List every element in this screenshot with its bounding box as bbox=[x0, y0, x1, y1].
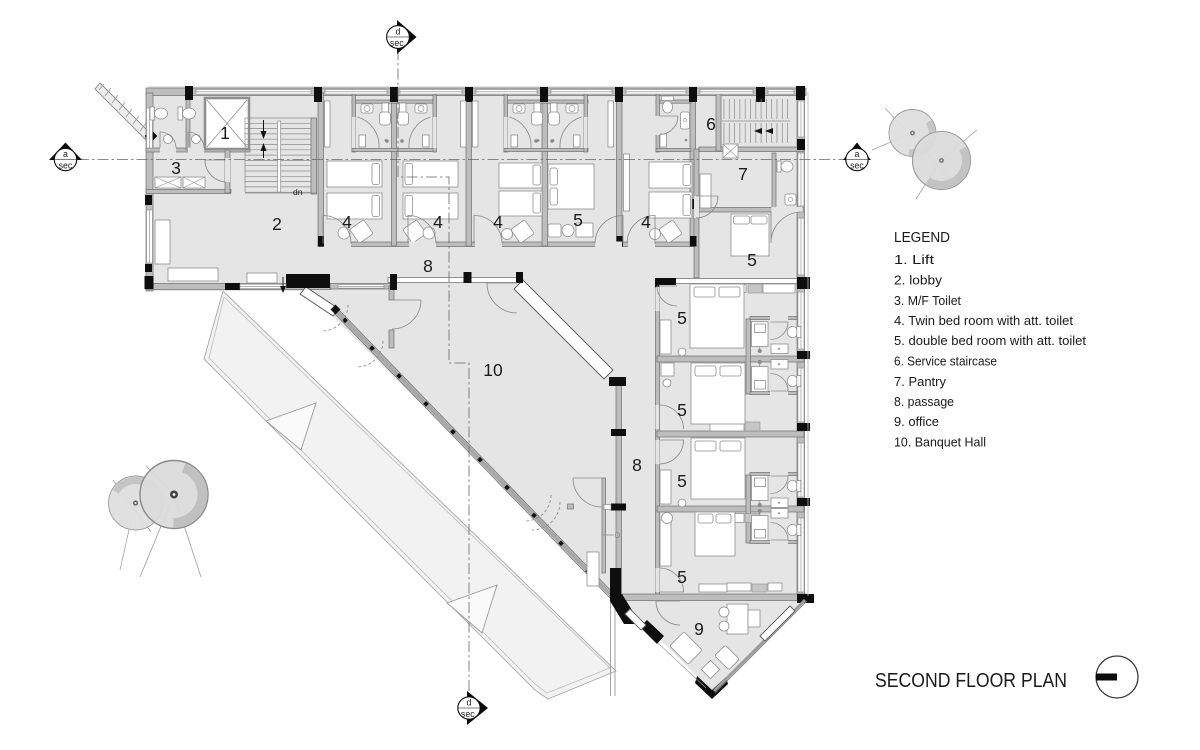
svg-text:SECOND FLOOR PLAN: SECOND FLOOR PLAN bbox=[875, 669, 1067, 692]
svg-text:d: d bbox=[396, 27, 401, 37]
svg-text:d: d bbox=[467, 698, 472, 708]
svg-text:7: 7 bbox=[738, 164, 748, 184]
svg-text:1. Lift: 1. Lift bbox=[894, 253, 935, 267]
svg-text:5: 5 bbox=[573, 210, 583, 230]
svg-text:sec.: sec. bbox=[461, 709, 477, 719]
svg-text:3. M/F Toilet: 3. M/F Toilet bbox=[894, 294, 962, 308]
svg-text:4: 4 bbox=[493, 212, 503, 232]
svg-text:5: 5 bbox=[677, 308, 687, 328]
svg-text:7. Pantry: 7. Pantry bbox=[894, 375, 947, 389]
svg-text:LEGEND: LEGEND bbox=[894, 230, 950, 246]
svg-text:9: 9 bbox=[694, 619, 704, 639]
svg-text:sec: sec bbox=[59, 161, 73, 171]
svg-text:5: 5 bbox=[677, 400, 687, 420]
svg-text:2: 2 bbox=[272, 214, 282, 234]
svg-text:5: 5 bbox=[747, 250, 757, 270]
svg-text:4: 4 bbox=[433, 212, 443, 232]
svg-text:10. Banquet Hall: 10. Banquet Hall bbox=[894, 436, 986, 450]
svg-text:3: 3 bbox=[171, 158, 181, 178]
svg-text:2. lobby: 2. lobby bbox=[894, 274, 943, 288]
svg-text:5: 5 bbox=[677, 567, 687, 587]
svg-text:sec: sec bbox=[850, 161, 864, 171]
svg-text:a: a bbox=[63, 149, 68, 159]
svg-text:9. office: 9. office bbox=[894, 415, 939, 429]
svg-text:1: 1 bbox=[220, 123, 230, 143]
svg-text:a: a bbox=[855, 149, 860, 159]
svg-text:4. Twin bed room with att. toi: 4. Twin bed room with att. toilet bbox=[894, 314, 1074, 328]
svg-text:dn: dn bbox=[293, 187, 303, 197]
svg-text:5: 5 bbox=[677, 471, 687, 491]
svg-text:8: 8 bbox=[632, 455, 642, 475]
svg-text:10: 10 bbox=[483, 360, 503, 380]
svg-text:4: 4 bbox=[641, 212, 651, 232]
svg-text:5. double bed room with att. t: 5. double bed room with att. toilet bbox=[894, 334, 1087, 348]
svg-text:4: 4 bbox=[342, 212, 352, 232]
svg-text:8. passage: 8. passage bbox=[894, 395, 954, 409]
svg-text:sec.: sec. bbox=[390, 38, 406, 48]
svg-text:6: 6 bbox=[706, 114, 716, 134]
svg-text:8: 8 bbox=[423, 256, 433, 276]
svg-text:6. Service staircase: 6. Service staircase bbox=[894, 355, 997, 369]
